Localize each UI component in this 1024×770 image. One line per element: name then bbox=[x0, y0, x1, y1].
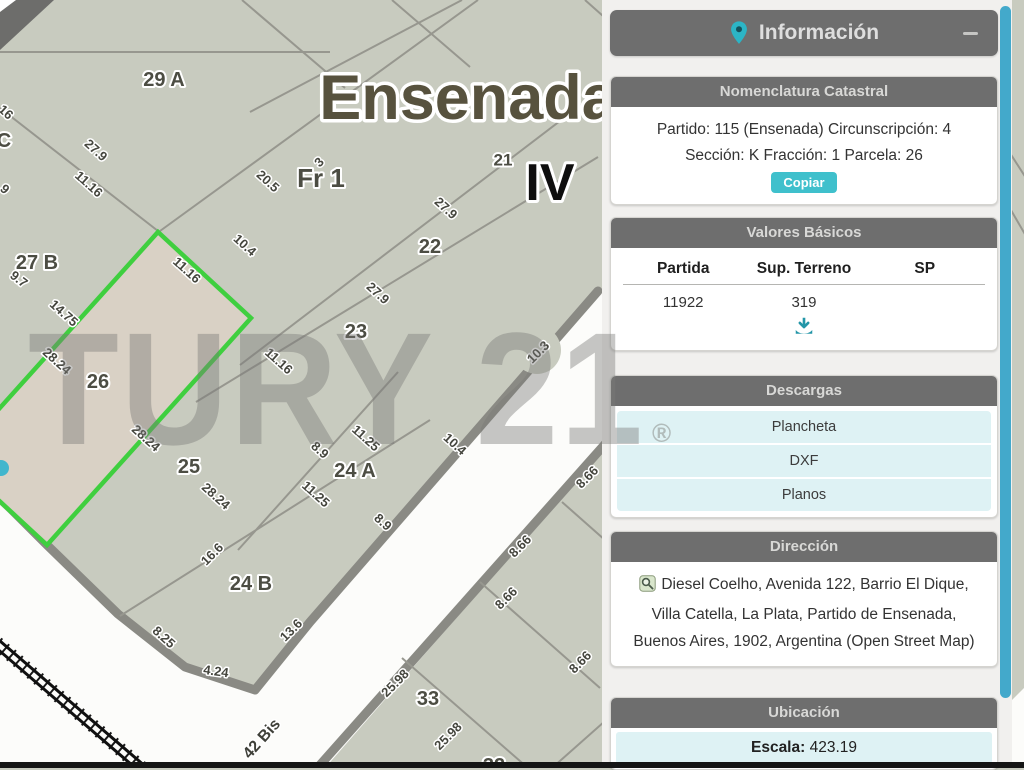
table-row: 11922 319 bbox=[621, 285, 987, 313]
download-dxf[interactable]: DXF bbox=[617, 445, 991, 479]
map-pin-icon bbox=[729, 20, 749, 46]
ubicacion-header: Ubicación bbox=[611, 698, 997, 728]
escala-label: Escala: bbox=[751, 739, 805, 756]
map-label: 23 bbox=[345, 321, 367, 343]
direccion-card: Dirección Diesel Coelho, Avenida 122, Ba… bbox=[610, 531, 998, 667]
escala-value: 423.19 bbox=[810, 739, 857, 756]
map-label: 22 bbox=[419, 236, 441, 258]
map-label: 29 A bbox=[143, 69, 185, 91]
download-row-button[interactable] bbox=[621, 313, 987, 344]
map-label: 24 A bbox=[334, 460, 376, 482]
info-panel: Información Nomenclatura Catastral Parti… bbox=[602, 0, 1012, 768]
map-label: 24 B bbox=[230, 573, 272, 595]
map-label: Ensenada bbox=[319, 63, 618, 133]
valores-table: Partida Sup. Terreno SP 11922 319 bbox=[611, 248, 997, 350]
panel-scrollbar[interactable] bbox=[1000, 6, 1011, 698]
panel-title: Información bbox=[759, 21, 879, 45]
nomenclatura-header: Nomenclatura Catastral bbox=[611, 77, 997, 107]
direccion-header: Dirección bbox=[611, 532, 997, 562]
nomenclatura-card: Nomenclatura Catastral Partido: 115 (Ens… bbox=[610, 76, 998, 205]
descargas-card: Descargas Plancheta DXF Planos bbox=[610, 375, 998, 518]
direccion-body: Diesel Coelho, Avenida 122, Barrio El Di… bbox=[611, 562, 997, 666]
nomenclatura-line2: Sección: K Fracción: 1 Parcela: 26 bbox=[623, 143, 985, 169]
col-sup-terreno: Sup. Terreno bbox=[745, 260, 862, 278]
col-partida: Partida bbox=[621, 260, 745, 278]
direccion-text: Diesel Coelho, Avenida 122, Barrio El Di… bbox=[633, 576, 974, 650]
panel-header-card: Información bbox=[610, 10, 998, 56]
escala-row: Escala: 423.19 bbox=[616, 732, 992, 764]
minus-icon bbox=[963, 32, 978, 35]
road-surface-right-strip bbox=[1012, 688, 1024, 768]
download-plancheta[interactable]: Plancheta bbox=[617, 411, 991, 445]
value-partida: 11922 bbox=[621, 294, 745, 311]
map-label: 21 bbox=[494, 151, 513, 170]
map-search-icon bbox=[639, 574, 656, 601]
ubicacion-card: Ubicación Escala: 423.19 bbox=[610, 697, 998, 770]
download-icon bbox=[793, 315, 815, 342]
map-label: 25 bbox=[178, 456, 200, 478]
nomenclatura-body: Partido: 115 (Ensenada) Circunscripción:… bbox=[611, 107, 997, 204]
collapse-button[interactable] bbox=[957, 10, 984, 56]
descargas-header: Descargas bbox=[611, 376, 997, 406]
download-planos[interactable]: Planos bbox=[617, 479, 991, 511]
col-sp: SP bbox=[863, 260, 987, 278]
value-sup-terreno: 319 bbox=[745, 294, 862, 311]
bottom-border bbox=[0, 762, 1024, 768]
map-label: 33 bbox=[417, 688, 439, 710]
map-label: 26 bbox=[87, 371, 109, 393]
nomenclatura-line1: Partido: 115 (Ensenada) Circunscripción:… bbox=[623, 117, 985, 143]
valores-header: Valores Básicos bbox=[611, 218, 997, 248]
value-sp bbox=[863, 294, 987, 311]
map-label: C bbox=[0, 130, 11, 152]
map-label: IV bbox=[525, 154, 574, 212]
valores-card: Valores Básicos Partida Sup. Terreno SP … bbox=[610, 217, 998, 351]
copy-button[interactable]: Copiar bbox=[771, 172, 836, 193]
map-label: 27 B bbox=[16, 252, 58, 274]
